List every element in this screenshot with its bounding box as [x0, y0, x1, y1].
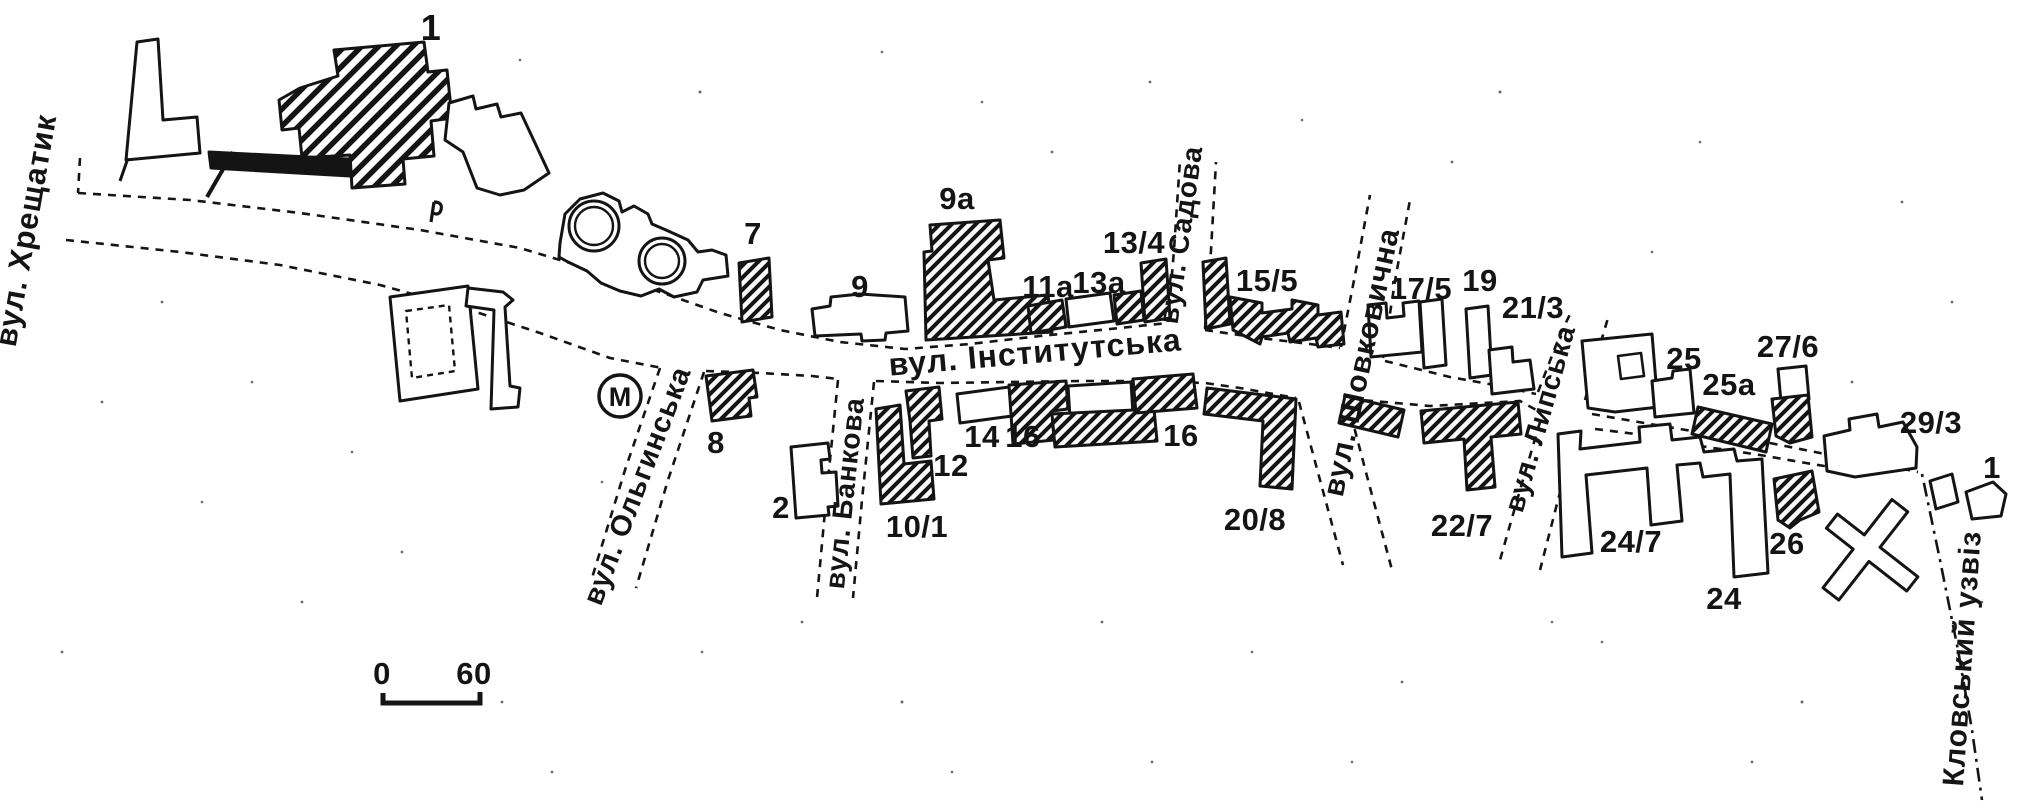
scale-bar-line	[383, 692, 480, 703]
building-15-5-strip	[1230, 297, 1344, 347]
street-edge-khreshchatyk	[78, 158, 80, 193]
building-label-24-7: 24/7	[1600, 524, 1662, 559]
building-label-1-nw: 1	[421, 7, 442, 48]
building-label-25a: 25а	[1702, 367, 1755, 402]
building-25-courtyard	[1618, 353, 1644, 379]
building-label-20-8: 20/8	[1224, 502, 1286, 537]
building-label-24: 24	[1706, 581, 1742, 616]
building-label-19: 19	[1462, 263, 1497, 298]
building-17-5-slab	[1420, 299, 1446, 368]
building-label-26: 26	[1769, 526, 1804, 561]
building-label-14: 14	[964, 419, 1000, 454]
building-27-6-hatched	[1772, 395, 1812, 443]
building-label-15-5: 15/5	[1236, 263, 1298, 298]
building-label-2: 2	[772, 490, 790, 525]
building-label-8: 8	[707, 425, 725, 460]
building-label-13a: 13а	[1072, 265, 1125, 300]
building-20-8	[1204, 388, 1296, 489]
building-tower-west-inner	[575, 207, 613, 245]
building-label-21-3: 21/3	[1502, 290, 1564, 325]
building-25-annex	[1652, 369, 1694, 417]
scale-end-label: 60	[456, 656, 491, 691]
building-label-29-3: 29/3	[1900, 405, 1962, 440]
building-16-hatch-east	[1133, 374, 1197, 413]
building-outline-ne-of-1	[445, 96, 549, 195]
metro-letter: М	[609, 382, 632, 412]
scale-bar: 0 60	[373, 656, 492, 703]
building-19-slab	[1466, 306, 1492, 378]
building-label-9a: 9а	[939, 181, 975, 216]
building-label-27-6: 27/6	[1757, 329, 1819, 364]
building-label-13-4: 13/4	[1103, 225, 1166, 260]
map-canvas: М 0 60 вул. Хрещатик вул. Ольгинська вул…	[0, 0, 2026, 810]
building-label-11a: 11а	[1022, 269, 1074, 304]
building-label-17-5: 17/5	[1390, 271, 1452, 306]
building-26	[1774, 471, 1819, 528]
building-label-16-west: 16	[1005, 419, 1040, 454]
building-8	[706, 370, 757, 421]
building-11a	[1028, 300, 1066, 333]
building-label-25: 25	[1666, 341, 1701, 376]
building-15-5-head	[1203, 258, 1230, 329]
building-7	[739, 258, 772, 322]
building-tower-east-inner	[645, 244, 679, 278]
building-1-east-pentagon	[1966, 482, 2006, 519]
building-24-7-24	[1558, 424, 1768, 577]
building-label-7: 7	[744, 216, 762, 251]
metro-symbol: М	[599, 375, 641, 417]
building-14	[957, 387, 1012, 423]
building-label-1-se: 1	[1983, 450, 2001, 485]
building-label-22-7: 22/7	[1431, 508, 1493, 543]
building-label-16-east: 16	[1163, 418, 1198, 453]
street-label-khreshchatyk: вул. Хрещатик	[0, 111, 63, 349]
building-outline-nw-L	[126, 39, 200, 160]
flag-symbol	[431, 202, 441, 222]
building-16-hatch-bottom	[1052, 409, 1157, 447]
building-label-9: 9	[851, 269, 869, 304]
building-outline-nw-L-pole	[120, 158, 128, 181]
scale-start-label: 0	[373, 656, 391, 691]
building-1-east-square	[1930, 474, 1958, 509]
building-label-10-1: 10/1	[886, 509, 948, 544]
street-label-klovskyi-uzviz: Кловський узвіз	[1937, 529, 1988, 787]
street-edges	[66, 158, 1982, 800]
city-plan-map: М 0 60 вул. Хрещатик вул. Ольгинська вул…	[0, 0, 2026, 810]
building-25a	[1692, 407, 1772, 452]
building-21-3	[1489, 347, 1534, 394]
